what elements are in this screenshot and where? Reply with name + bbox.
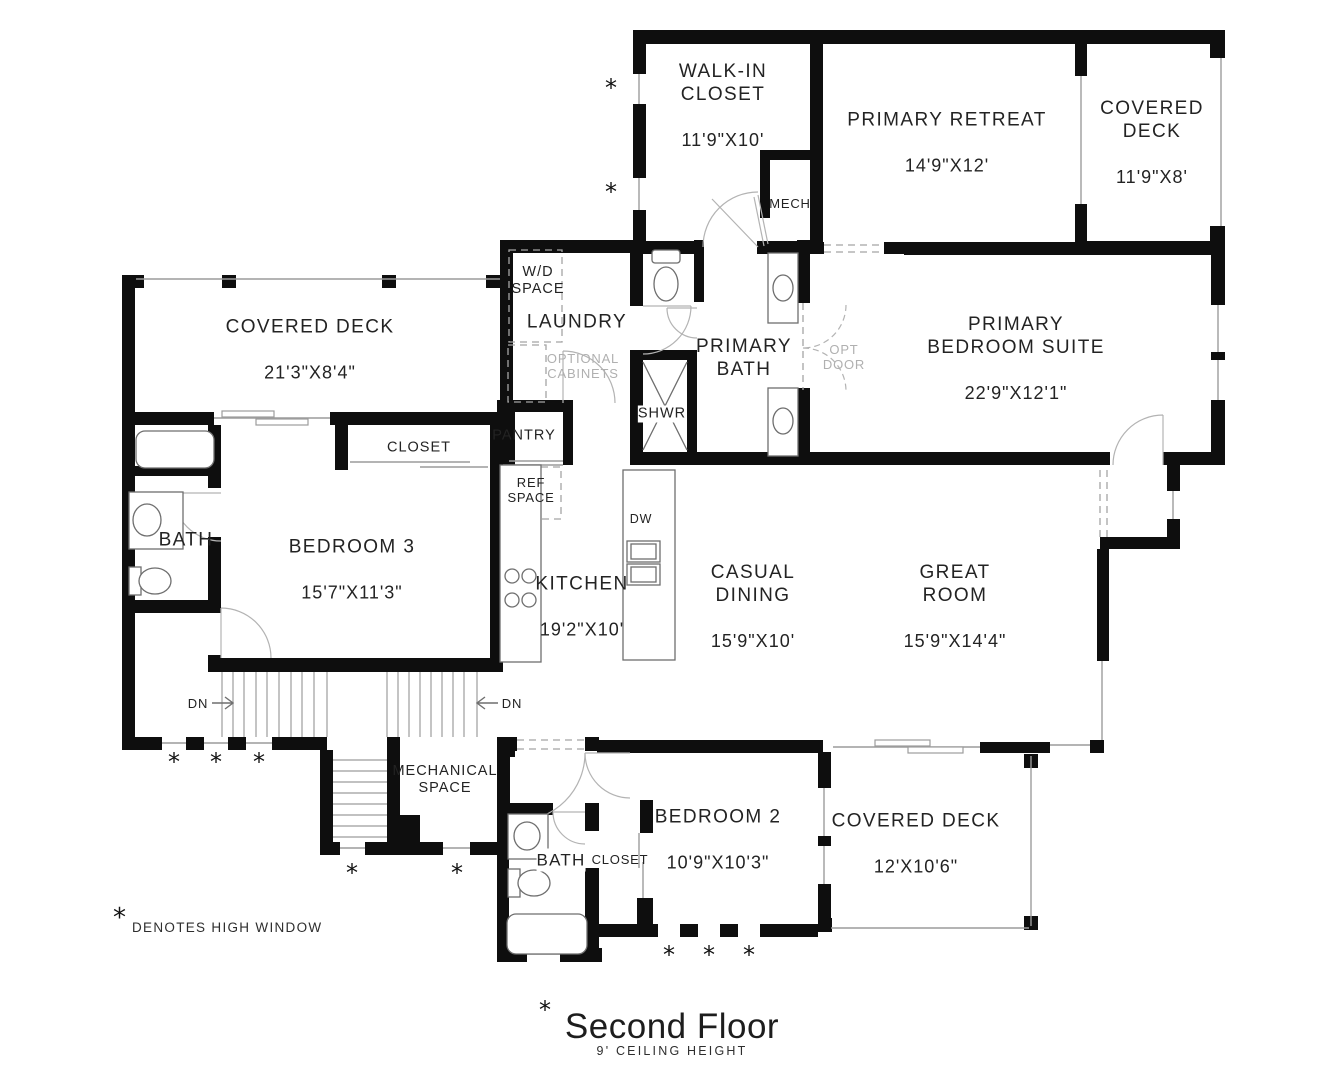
high-window-marker: * (605, 74, 617, 102)
label-dn-right: DN (502, 680, 522, 727)
sink (133, 504, 161, 536)
room-label-mechanical-space: MECHANICAL SPACE (392, 746, 497, 814)
room-label-ref-space: REF SPACE (507, 459, 554, 521)
high-window-marker: * (703, 941, 715, 969)
bathtub (507, 914, 587, 954)
legend-high-window-symbol: * (113, 903, 126, 933)
sink (773, 275, 793, 301)
island-sink-basin (631, 544, 656, 559)
high-window-marker: * (346, 859, 358, 887)
room-label-covered-deck-ne: COVERED DECK 11'9"X8' (1100, 74, 1204, 212)
bathtub (136, 431, 214, 468)
room-label-mech: MECH (769, 180, 810, 227)
label-dishwasher: DW (630, 498, 652, 540)
room-label-bath-west: BATH (159, 506, 214, 575)
page-title: Second Floor (565, 1007, 779, 1047)
label-opt-door: OPT DOOR (823, 326, 865, 388)
legend-text: DENOTES HIGH WINDOW (132, 920, 322, 935)
sink (773, 408, 793, 434)
room-label-covered-deck-west: COVERED DECK 21'3"X8'4" (226, 293, 395, 408)
room-label-kitchen: KITCHEN 19'2"X10' (535, 550, 628, 665)
label-dn-left: DN (188, 680, 208, 727)
high-window-marker: * (451, 859, 463, 887)
high-window-marker: * (539, 996, 551, 1024)
high-window-marker: * (605, 178, 617, 206)
high-window-marker: * (743, 941, 755, 969)
room-label-closet-bedroom2: CLOSET (592, 836, 649, 883)
floor-plan: WALK-IN CLOSET 11'9"X10' PRIMARY RETREAT… (0, 0, 1321, 1080)
toilet-tank (652, 250, 680, 263)
room-label-walk-in-closet: WALK-IN CLOSET 11'9"X10' (679, 37, 767, 175)
label-optional-cabinets: OPTIONAL CABINETS (547, 335, 619, 397)
room-label-covered-deck-se: COVERED DECK 12'X10'6" (832, 787, 1001, 902)
high-window-marker: * (168, 748, 180, 776)
room-label-primary-bath: PRIMARY BATH (696, 312, 792, 404)
room-label-pantry: PANTRY (492, 411, 555, 462)
room-label-closet-bedroom3: CLOSET (387, 423, 451, 474)
cooktop-burner (505, 569, 519, 583)
room-label-great-room: GREAT ROOM 15'9"X14'4" (904, 538, 1007, 676)
room-label-primary-bedroom-suite: PRIMARY BEDROOM SUITE 22'9"X12'1" (927, 290, 1105, 428)
room-label-casual-dining: CASUAL DINING 15'9"X10' (711, 538, 795, 676)
cooktop-burner (522, 569, 536, 583)
cooktop-burner (505, 593, 519, 607)
room-label-bath-south: BATH (537, 826, 586, 895)
room-label-primary-retreat: PRIMARY RETREAT 14'9"X12' (847, 86, 1046, 201)
toilet-bowl (654, 267, 678, 301)
dn-arrows (212, 697, 498, 709)
island-sink-basin (631, 567, 656, 582)
cooktop-burner (522, 593, 536, 607)
high-window-marker: * (253, 748, 265, 776)
room-label-bedroom3: BEDROOM 3 15'7"X11'3" (289, 513, 416, 628)
high-window-marker: * (210, 748, 222, 776)
high-window-marker: * (663, 941, 675, 969)
room-label-bedroom2: BEDROOM 2 10'9"X10'3" (655, 783, 782, 898)
room-label-shower: SHWR (638, 389, 686, 440)
page-subtitle: 9' CEILING HEIGHT (597, 1044, 748, 1058)
